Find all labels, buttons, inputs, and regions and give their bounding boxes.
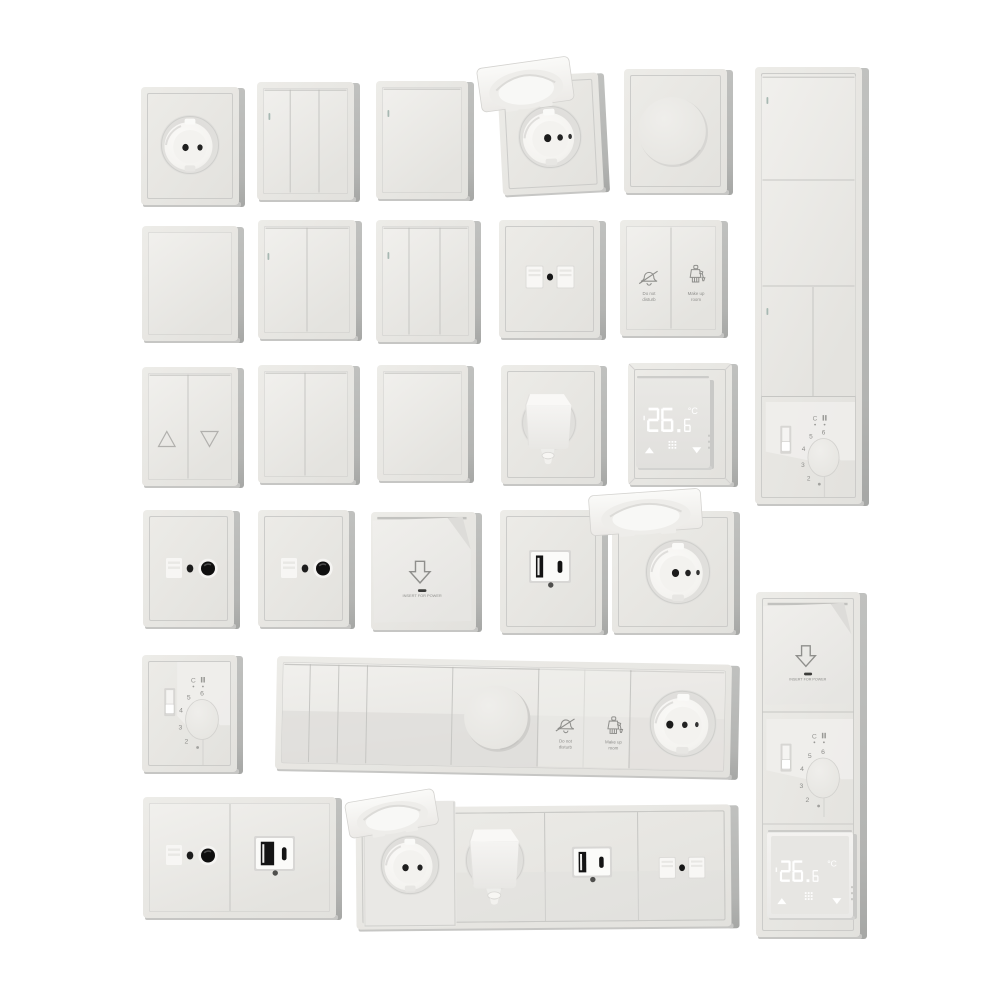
svg-text:°C: °C xyxy=(827,858,837,868)
svg-text:°C: °C xyxy=(688,406,699,416)
svg-text:Do not: Do not xyxy=(559,738,573,743)
svg-text:2: 2 xyxy=(185,738,189,745)
svg-text:INSERT FOR POWER: INSERT FOR POWER xyxy=(789,677,826,681)
svg-text:3: 3 xyxy=(179,724,183,731)
svg-text:5: 5 xyxy=(809,433,813,440)
svg-text:C: C xyxy=(812,733,817,740)
svg-text:disturb: disturb xyxy=(642,297,656,302)
svg-text:disturb: disturb xyxy=(559,744,573,749)
svg-text:Do not: Do not xyxy=(643,291,657,296)
svg-text:room: room xyxy=(608,745,618,750)
svg-text:3: 3 xyxy=(801,462,805,469)
svg-text:6: 6 xyxy=(200,690,204,697)
svg-text:4: 4 xyxy=(802,446,806,453)
svg-text:3: 3 xyxy=(800,783,804,790)
svg-text:C: C xyxy=(813,416,818,423)
svg-text:C: C xyxy=(191,677,196,684)
svg-text:4: 4 xyxy=(179,707,183,714)
svg-text:INSERT FOR POWER: INSERT FOR POWER xyxy=(403,593,442,598)
svg-text:5: 5 xyxy=(187,694,191,701)
svg-text:Make up: Make up xyxy=(688,291,705,296)
svg-text:6: 6 xyxy=(822,429,826,436)
svg-text:Make up: Make up xyxy=(605,739,622,744)
svg-text:room: room xyxy=(691,297,701,302)
svg-text:4: 4 xyxy=(800,766,804,773)
svg-text:2: 2 xyxy=(806,797,810,804)
svg-text:5: 5 xyxy=(808,753,812,760)
svg-text:6: 6 xyxy=(821,749,825,756)
svg-text:2: 2 xyxy=(807,475,811,482)
